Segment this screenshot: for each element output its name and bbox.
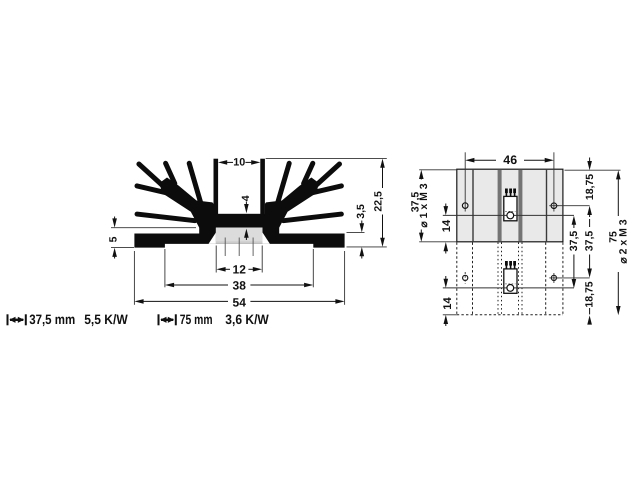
svg-text:14: 14	[441, 219, 453, 232]
svg-text:⌀ 2 x M 3: ⌀ 2 x M 3	[618, 219, 630, 263]
svg-text:18,75: 18,75	[584, 174, 596, 200]
svg-text:5,5 K/W: 5,5 K/W	[84, 312, 128, 327]
svg-text:18,75: 18,75	[583, 281, 595, 307]
svg-text:3,6 K/W: 3,6 K/W	[225, 312, 269, 327]
svg-text:5: 5	[108, 236, 120, 242]
svg-text:4: 4	[240, 195, 252, 201]
svg-text:75 mm: 75 mm	[180, 312, 213, 327]
svg-text:46: 46	[503, 153, 517, 167]
svg-text:37,5 mm: 37,5 mm	[29, 312, 75, 327]
svg-text:14: 14	[442, 297, 454, 310]
svg-text:37,5: 37,5	[584, 231, 596, 252]
svg-text:12: 12	[233, 262, 247, 276]
svg-text:22,5: 22,5	[372, 191, 384, 212]
svg-text:3,5: 3,5	[355, 204, 367, 219]
svg-text:⌀ 1 x M 3: ⌀ 1 x M 3	[418, 183, 430, 227]
svg-text:54: 54	[233, 296, 247, 310]
svg-text:37,5: 37,5	[568, 231, 580, 252]
svg-text:10: 10	[233, 157, 245, 169]
svg-text:38: 38	[233, 279, 247, 293]
